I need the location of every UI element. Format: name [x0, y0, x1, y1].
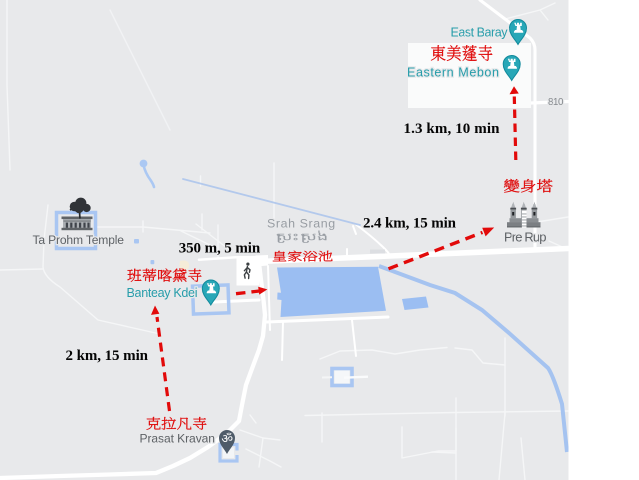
svg-text:2 km, 15 min: 2 km, 15 min [66, 348, 149, 364]
svg-text:Srah Srang: Srah Srang [267, 217, 336, 231]
svg-text:2.4 km, 15 min: 2.4 km, 15 min [363, 215, 457, 231]
svg-text:1.3 km, 10 min: 1.3 km, 10 min [404, 121, 501, 137]
svg-text:Pre Rup: Pre Rup [504, 230, 547, 245]
svg-text:East Baray: East Baray [451, 26, 509, 40]
svg-text:Ta Prohm Temple: Ta Prohm Temple [33, 233, 125, 247]
svg-text:350 m, 5 min: 350 m, 5 min [179, 241, 261, 257]
svg-text:Prasat Kravan: Prasat Kravan [140, 432, 216, 446]
svg-text:Eastern Mebon: Eastern Mebon [407, 66, 499, 80]
svg-text:810: 810 [548, 97, 564, 108]
svg-text:Banteay Kdei: Banteay Kdei [127, 286, 198, 300]
